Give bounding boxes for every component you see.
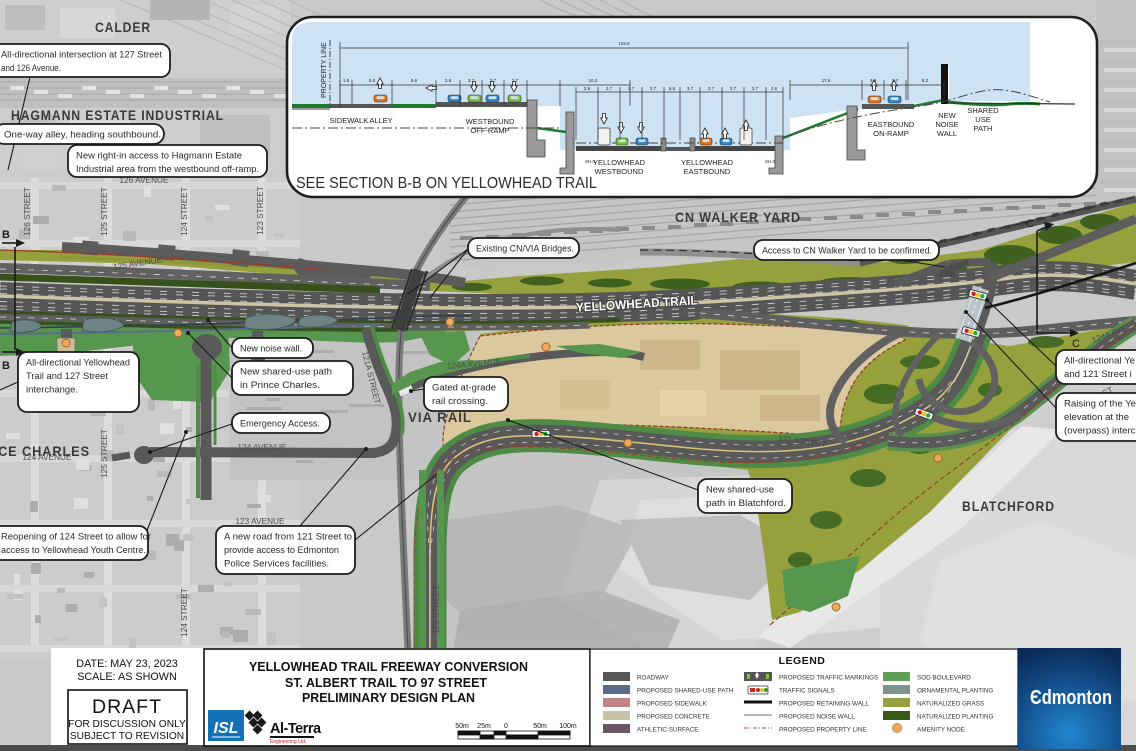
svg-text:PROPOSED PROPERTY LINE: PROPOSED PROPERTY LINE [779,727,867,734]
svg-text:3.7: 3.7 [687,86,694,91]
svg-text:ISL: ISL [214,720,239,737]
svg-text:Raising of the Ye: Raising of the Ye [1064,399,1136,410]
svg-text:ROADWAY: ROADWAY [637,675,670,682]
svg-text:YELLOWHEAD TRAIL FREEWAY CONVE: YELLOWHEAD TRAIL FREEWAY CONVERSION [249,660,528,674]
svg-text:Gated at-grade: Gated at-grade [432,383,496,394]
svg-text:BLATCHFORD: BLATCHFORD [962,499,1055,514]
svg-text:123 STREET: 123 STREET [255,186,265,235]
svg-text:PROPOSED SIDEWALK: PROPOSED SIDEWALK [637,701,708,708]
svg-text:FOR DISCUSSION ONLY: FOR DISCUSSION ONLY [68,719,186,730]
svg-text:C: C [1026,218,1034,230]
svg-text:ALLEY: ALLEY [369,116,392,125]
svg-text:125 STREET: 125 STREET [99,187,109,236]
svg-text:Reopening of 124 Street to all: Reopening of 124 Street to allow for [1,532,152,543]
svg-text:125 STREET: 125 STREET [99,429,109,478]
svg-text:PATH: PATH [974,124,993,133]
svg-text:Industrial area from the westb: Industrial area from the westbound off-r… [76,164,259,175]
svg-text:New shared-use path: New shared-use path [240,367,332,378]
svg-text:ATHLETIC SURFACE: ATHLETIC SURFACE [637,727,698,734]
svg-text:in Prince Charles.: in Prince Charles. [240,380,320,391]
svg-text:DATE: MAY 23, 2023: DATE: MAY 23, 2023 [76,658,177,670]
svg-text:NOISE: NOISE [935,120,958,129]
svg-text:ST. ALBERT TRAIL TO 97 STREET: ST. ALBERT TRAIL TO 97 STREET [285,676,487,690]
svg-text:0: 0 [504,723,508,730]
svg-text:6.0: 6.0 [369,78,376,83]
svg-text:HAGMANN ESTATE INDUSTRIAL: HAGMANN ESTATE INDUSTRIAL [11,107,224,123]
svg-text:All-directional intersection a: All-directional intersection at 127 Stre… [1,50,162,61]
svg-text:DRAFT: DRAFT [92,696,162,718]
svg-text:Access to CN Walker Yard to be: Access to CN Walker Yard to be confirmed… [762,246,932,257]
svg-text:One-way alley, heading southbo: One-way alley, heading southbound. [4,130,161,141]
svg-text:10.2: 10.2 [589,78,598,83]
svg-text:3.7: 3.7 [730,86,737,91]
svg-text:SOD BOULEVARD: SOD BOULEVARD [917,675,971,682]
svg-text:Trail and 127 Street: Trail and 127 Street [26,371,108,382]
svg-text:TRAFFIC SIGNALS: TRAFFIC SIGNALS [779,688,835,695]
svg-text:interchange.: interchange. [26,385,78,396]
svg-text:C: C [1072,338,1080,350]
svg-text:WESTBOUND: WESTBOUND [466,117,515,126]
svg-text:124 AVENUE: 124 AVENUE [237,442,287,452]
svg-text:124 STREET: 124 STREET [179,588,189,637]
svg-text:AMENITY NODE: AMENITY NODE [917,727,965,734]
svg-text:17.6: 17.6 [822,78,831,83]
svg-text:SUBJECT TO REVISION: SUBJECT TO REVISION [70,731,184,742]
svg-text:PROPOSED RETAINING WALL: PROPOSED RETAINING WALL [779,701,869,708]
svg-text:3.7: 3.7 [606,86,613,91]
svg-text:and 121 Street i: and 121 Street i [1064,369,1132,380]
svg-text:Existing CN/VIA Bridges.: Existing CN/VIA Bridges. [476,244,574,255]
svg-text:All-directional Yellowhead: All-directional Yellowhead [26,358,130,369]
svg-text:Єdmonton: Єdmonton [1030,687,1112,709]
svg-text:provide access to Edmonton: provide access to Edmonton [224,545,339,556]
svg-text:B: B [2,229,10,241]
svg-text:103.8: 103.8 [618,41,630,46]
svg-text:OFF-RAMP: OFF-RAMP [470,126,509,135]
svg-text:50m: 50m [455,723,469,730]
svg-text:CALDER: CALDER [95,19,151,35]
svg-text:3.7: 3.7 [708,86,715,91]
svg-text:A new road from 121 Street to: A new road from 121 Street to [224,532,352,543]
svg-text:PROPOSED CONCRETE: PROPOSED CONCRETE [637,714,710,721]
svg-text:3.7: 3.7 [512,78,519,83]
svg-text:PROPERTY LINE: PROPERTY LINE [321,42,328,98]
svg-text:path in Blatchford.: path in Blatchford. [706,498,786,509]
svg-text:8.6: 8.6 [411,78,418,83]
svg-text:Police Services facilities.: Police Services facilities. [224,559,329,570]
svg-text:123 AVENUE: 123 AVENUE [235,516,285,526]
svg-text:SHARED: SHARED [967,106,999,115]
svg-text:NATURALIZED GRASS: NATURALIZED GRASS [917,701,984,708]
svg-text:SH.0: SH.0 [765,159,776,164]
svg-text:ORNAMENTAL PLANTING: ORNAMENTAL PLANTING [917,688,993,695]
svg-text:PRELIMINARY DESIGN PLAN: PRELIMINARY DESIGN PLAN [302,691,475,705]
svg-text:LEGEND: LEGEND [779,655,826,667]
svg-text:WALL: WALL [937,129,957,138]
svg-text:and 126 Avenue.: and 126 Avenue. [1,63,61,74]
svg-text:3.7: 3.7 [892,78,899,83]
svg-text:SCALE: AS SHOWN: SCALE: AS SHOWN [77,671,177,683]
svg-text:126 STREET: 126 STREET [22,187,32,236]
svg-text:YELLOWHEAD: YELLOWHEAD [593,158,646,167]
svg-text:SEE SECTION B-B ON YELLOWHEAD: SEE SECTION B-B ON YELLOWHEAD TRAIL [296,175,597,192]
svg-text:PROPOSED SHARED-USE PATH: PROPOSED SHARED-USE PATH [637,688,734,695]
svg-text:3.7: 3.7 [650,86,657,91]
svg-text:New shared-use: New shared-use [706,485,774,496]
svg-text:Al-Terra: Al-Terra [270,721,322,737]
svg-text:B: B [2,360,10,372]
svg-text:access to Yellowhead Youth Cen: access to Yellowhead Youth Centre. [1,545,146,556]
svg-text:124 STREET: 124 STREET [179,187,189,236]
svg-text:50m: 50m [533,723,547,730]
svg-text:2.6: 2.6 [771,86,778,91]
svg-text:3.7: 3.7 [490,78,497,83]
svg-text:6.5: 6.5 [669,86,676,91]
svg-text:Emergency Access.: Emergency Access. [240,419,320,430]
svg-text:SIDEWALK: SIDEWALK [330,116,368,125]
svg-text:New right-in access to Hagmann: New right-in access to Hagmann Estate [76,151,242,162]
svg-text:1.8: 1.8 [343,78,350,83]
svg-text:ON-RAMP: ON-RAMP [873,129,908,138]
svg-text:3.7: 3.7 [752,86,759,91]
svg-text:YELLOWHEAD: YELLOWHEAD [681,158,734,167]
svg-text:WESTBOUND: WESTBOUND [595,167,644,176]
svg-text:All-directional Ye: All-directional Ye [1064,356,1135,367]
svg-text:3.7: 3.7 [628,86,635,91]
svg-text:NATURALIZED PLANTING: NATURALIZED PLANTING [917,714,994,721]
svg-text:EASTBOUND: EASTBOUND [684,167,731,176]
svg-text:EASTBOUND: EASTBOUND [868,120,915,129]
svg-text:PROPOSED TRAFFIC MARKINGS: PROPOSED TRAFFIC MARKINGS [779,675,878,682]
svg-text:elevation at the: elevation at the [1064,412,1129,423]
svg-text:USE: USE [975,115,990,124]
svg-text:2.6: 2.6 [584,86,591,91]
svg-text:121 STREET: 121 STREET [431,585,441,634]
svg-text:8.2: 8.2 [922,78,929,83]
svg-text:3.9: 3.9 [870,78,877,83]
svg-text:PROPOSED NOISE WALL: PROPOSED NOISE WALL [779,714,855,721]
svg-text:Engineering Ltd.: Engineering Ltd. [270,739,306,745]
svg-text:rail crossing.: rail crossing. [432,396,488,407]
svg-text:25m: 25m [477,723,491,730]
svg-text:NEW: NEW [938,111,956,120]
svg-text:New noise wall.: New noise wall. [240,344,302,355]
svg-text:100m: 100m [559,723,577,730]
svg-text:(overpass) interc: (overpass) interc [1064,426,1136,437]
svg-text:CN WALKER YARD: CN WALKER YARD [675,209,801,225]
svg-text:124 AVENUE: 124 AVENUE [22,452,72,462]
svg-text:3.7: 3.7 [468,78,475,83]
svg-text:3.9: 3.9 [445,78,452,83]
